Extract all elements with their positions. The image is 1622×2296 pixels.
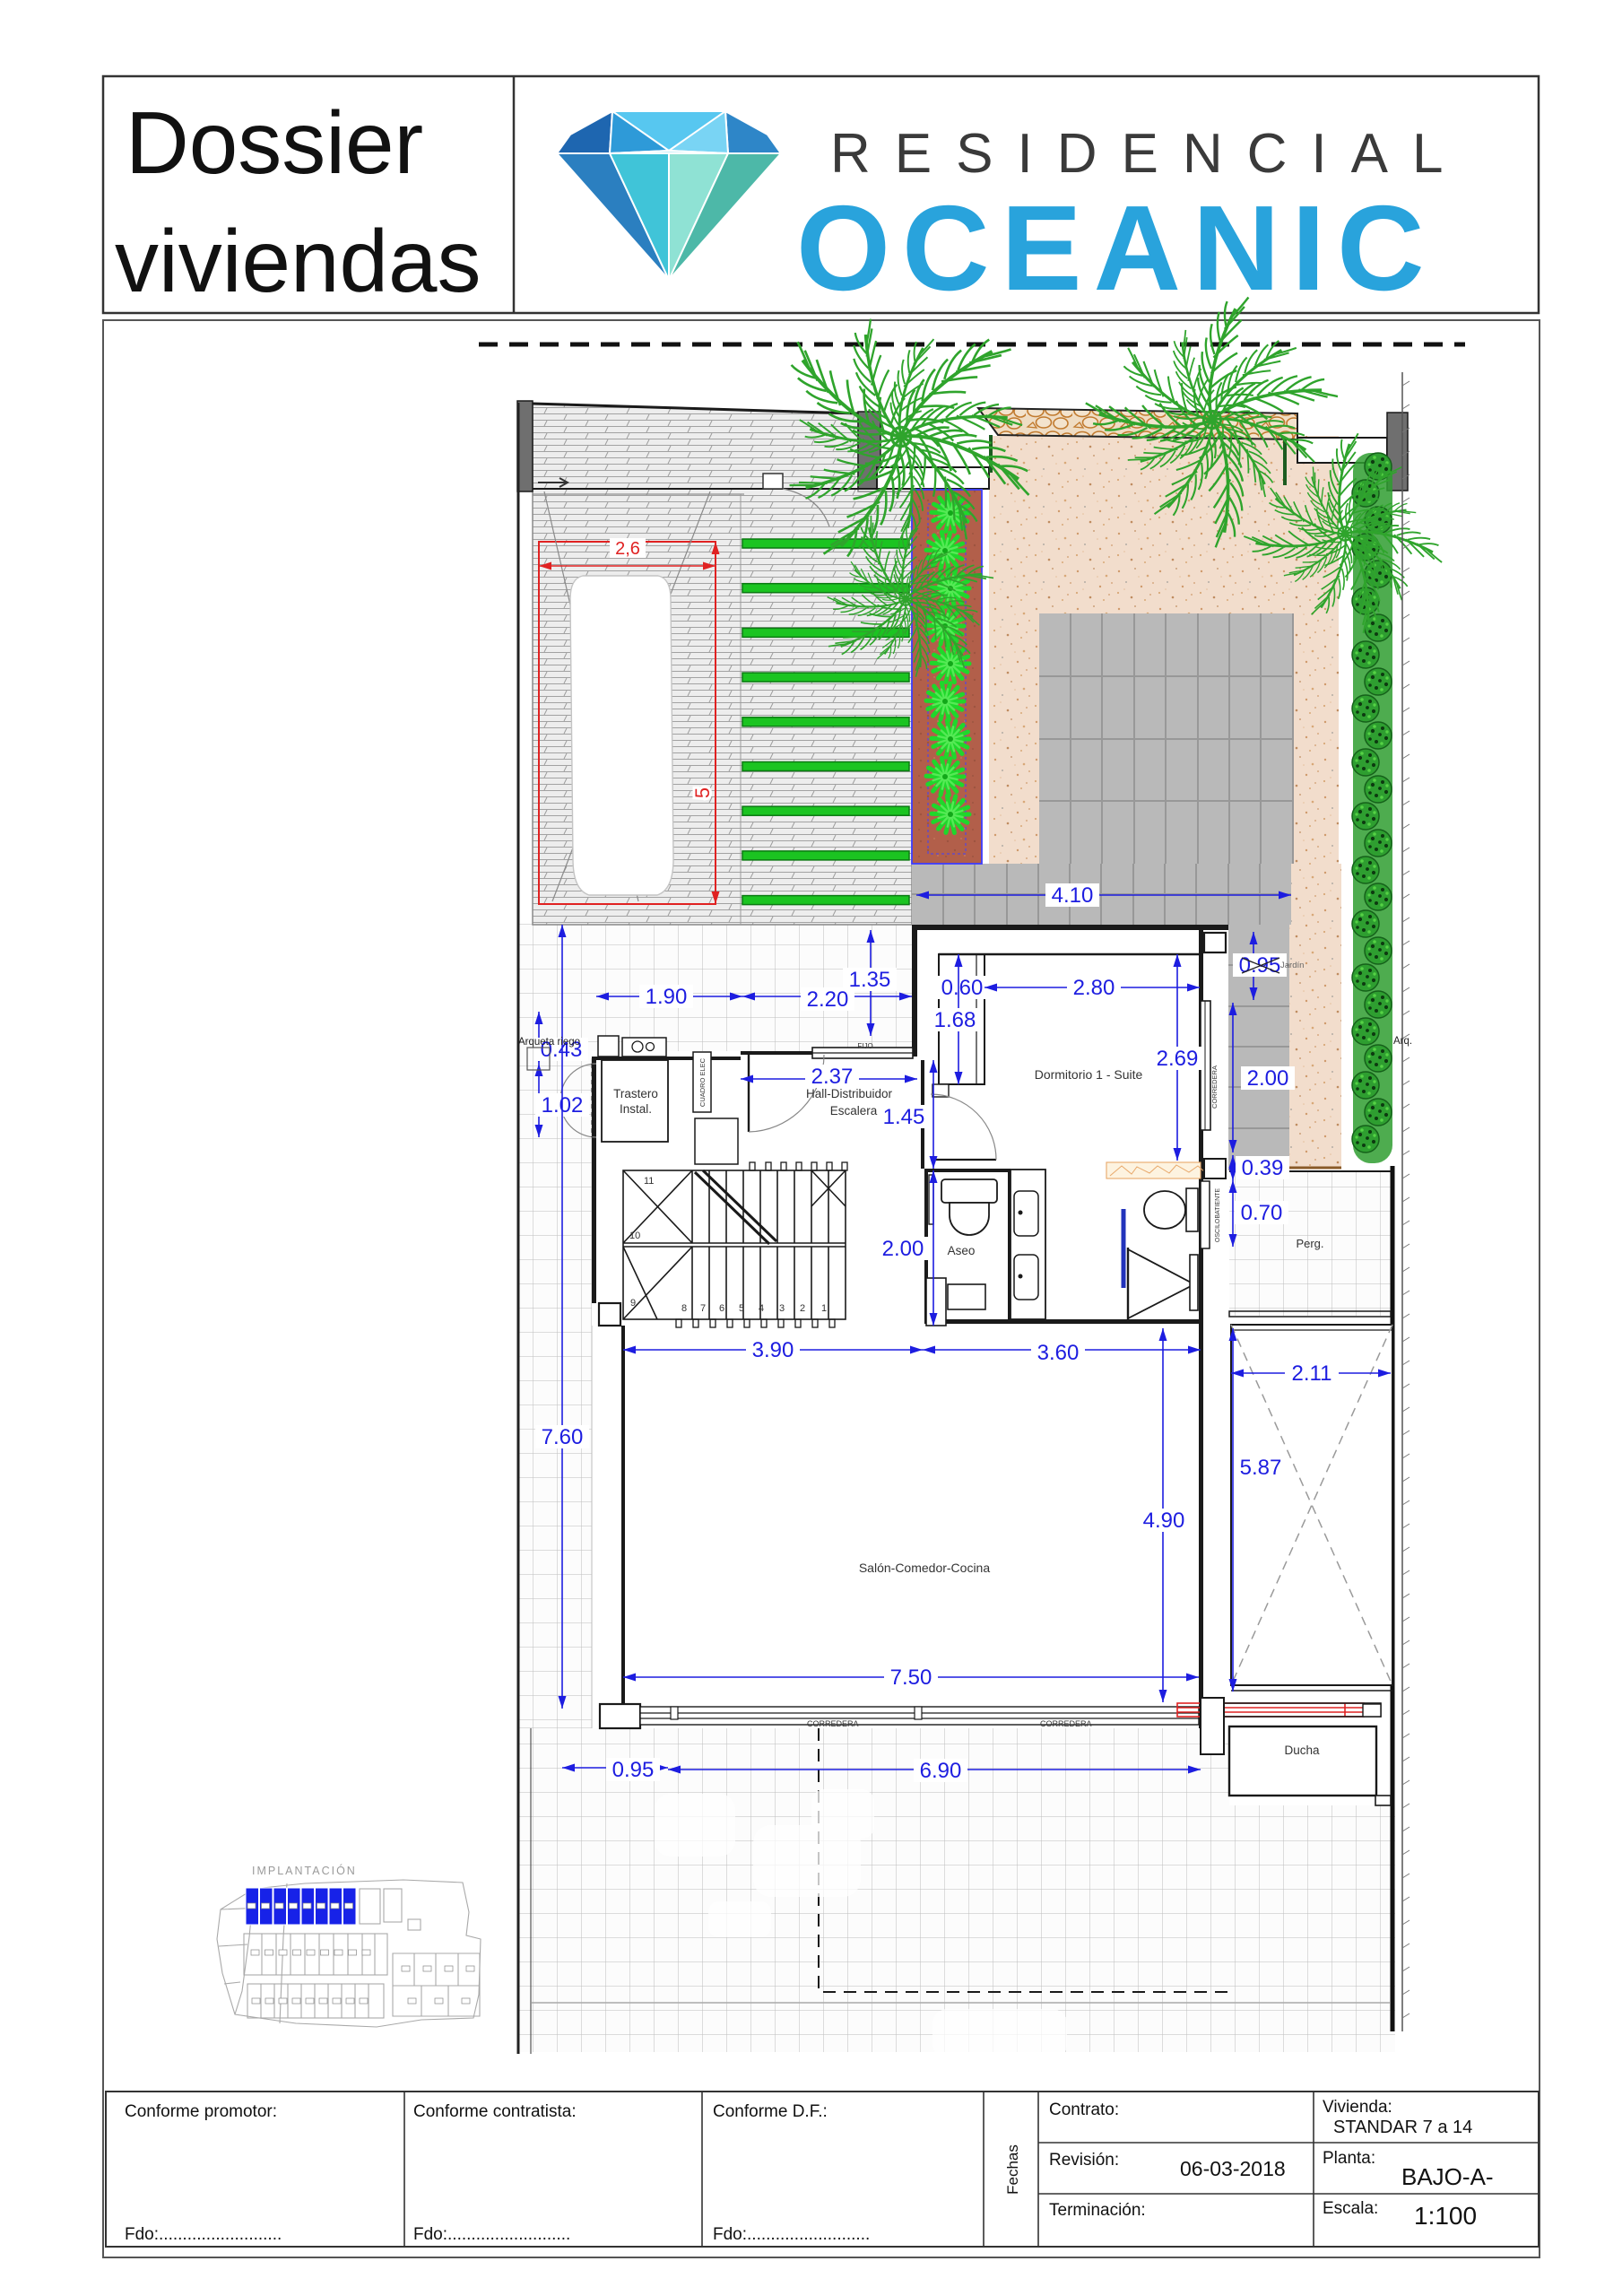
svg-text:Jardín: Jardín	[1280, 961, 1304, 970]
svg-text:2.00: 2.00	[882, 1237, 924, 1261]
svg-text:1: 1	[821, 1303, 827, 1314]
svg-text:Conforme D.F.:: Conforme D.F.:	[713, 2102, 828, 2121]
svg-text:OCEANIC: OCEANIC	[796, 180, 1436, 316]
svg-text:CORREDERA: CORREDERA	[1040, 1719, 1092, 1728]
svg-text:Escalera: Escalera	[830, 1104, 878, 1118]
svg-text:2.69: 2.69	[1157, 1047, 1199, 1071]
svg-text:4: 4	[759, 1303, 764, 1314]
svg-text:OSCILOBATIENTE: OSCILOBATIENTE	[1215, 1188, 1221, 1242]
svg-text:Planta:: Planta:	[1323, 2149, 1375, 2168]
svg-text:1.35: 1.35	[849, 968, 891, 992]
svg-text:1:100: 1:100	[1414, 2202, 1477, 2230]
svg-text:2.00: 2.00	[1247, 1066, 1289, 1091]
svg-text:Dormitorio 1 - Suite: Dormitorio 1 - Suite	[1035, 1067, 1143, 1082]
svg-text:6: 6	[719, 1303, 724, 1314]
svg-text:06-03-2018: 06-03-2018	[1180, 2157, 1286, 2180]
svg-text:CUADRO ELEC: CUADRO ELEC	[698, 1057, 707, 1107]
svg-text:9: 9	[630, 1298, 636, 1309]
svg-text:Fechas: Fechas	[1004, 2144, 1021, 2195]
svg-text:Conforme promotor:: Conforme promotor:	[125, 2102, 277, 2121]
svg-text:1.45: 1.45	[883, 1105, 925, 1129]
svg-text:Revisión:: Revisión:	[1049, 2151, 1119, 2170]
svg-text:Fdo:..........................: Fdo:..........................	[713, 2225, 870, 2244]
svg-text:Contrato:: Contrato:	[1049, 2100, 1119, 2119]
svg-text:Aseo: Aseo	[948, 1244, 976, 1257]
svg-text:Conforme contratista:: Conforme contratista:	[413, 2102, 577, 2121]
svg-text:Vivienda:: Vivienda:	[1323, 2098, 1392, 2117]
svg-text:Instal.: Instal.	[620, 1102, 652, 1116]
svg-text:3.90: 3.90	[752, 1338, 794, 1362]
svg-text:0.60: 0.60	[941, 976, 984, 1000]
svg-text:7.60: 7.60	[542, 1425, 584, 1449]
svg-text:4.10: 4.10	[1052, 883, 1094, 908]
svg-text:2: 2	[800, 1303, 805, 1314]
svg-text:viviendas: viviendas	[115, 212, 481, 310]
svg-text:CORREDERA: CORREDERA	[1210, 1065, 1219, 1109]
svg-text:2.11: 2.11	[1292, 1361, 1332, 1386]
svg-text:RESIDENCIAL: RESIDENCIAL	[830, 123, 1467, 185]
svg-text:Escala:: Escala:	[1323, 2199, 1378, 2218]
svg-text:Ducha: Ducha	[1284, 1744, 1320, 1757]
svg-text:Hall-Distribuidor: Hall-Distribuidor	[806, 1087, 893, 1100]
svg-text:7.50: 7.50	[890, 1665, 932, 1690]
svg-text:Fdo:..........................: Fdo:..........................	[413, 2225, 570, 2244]
svg-text:8: 8	[681, 1303, 687, 1314]
svg-text:1.90: 1.90	[646, 985, 688, 1009]
svg-text:2.37: 2.37	[811, 1065, 854, 1089]
svg-text:0.70: 0.70	[1241, 1201, 1283, 1225]
svg-text:Terminación:: Terminación:	[1049, 2201, 1146, 2220]
svg-text:11: 11	[644, 1176, 654, 1187]
svg-text:Salón-Comedor-Cocina: Salón-Comedor-Cocina	[859, 1561, 991, 1575]
svg-text:3: 3	[779, 1303, 785, 1314]
svg-text:0.95: 0.95	[612, 1758, 655, 1782]
svg-text:2.20: 2.20	[807, 987, 849, 1012]
svg-text:2.80: 2.80	[1073, 976, 1115, 1000]
svg-text:3.60: 3.60	[1037, 1341, 1080, 1365]
svg-text:5: 5	[691, 787, 714, 798]
svg-text:Perg.: Perg.	[1296, 1237, 1323, 1250]
svg-text:CORREDERA: CORREDERA	[807, 1719, 859, 1728]
svg-text:STANDAR 7 a 14: STANDAR 7 a 14	[1333, 2118, 1472, 2137]
svg-text:0.39: 0.39	[1242, 1156, 1284, 1180]
svg-text:4.90: 4.90	[1143, 1509, 1185, 1533]
svg-text:5: 5	[739, 1303, 744, 1314]
svg-text:FIJO: FIJO	[857, 1042, 872, 1050]
svg-text:Fdo:..........................: Fdo:..........................	[125, 2225, 282, 2244]
svg-text:Dossier: Dossier	[126, 93, 423, 192]
svg-text:Trastero: Trastero	[613, 1087, 658, 1100]
svg-text:5.87: 5.87	[1240, 1456, 1282, 1480]
svg-text:2,6: 2,6	[615, 539, 640, 559]
svg-text:10: 10	[629, 1231, 640, 1241]
svg-text:Arqueta riego: Arqueta riego	[518, 1037, 580, 1048]
svg-text:IMPLANTACIÓN: IMPLANTACIÓN	[252, 1864, 357, 1877]
svg-text:7: 7	[700, 1303, 706, 1314]
svg-text:6.90: 6.90	[920, 1759, 962, 1783]
svg-text:Arq.: Arq.	[1393, 1036, 1412, 1047]
svg-text:BAJO-A-: BAJO-A-	[1401, 2163, 1494, 2190]
svg-text:1.68: 1.68	[934, 1008, 976, 1032]
